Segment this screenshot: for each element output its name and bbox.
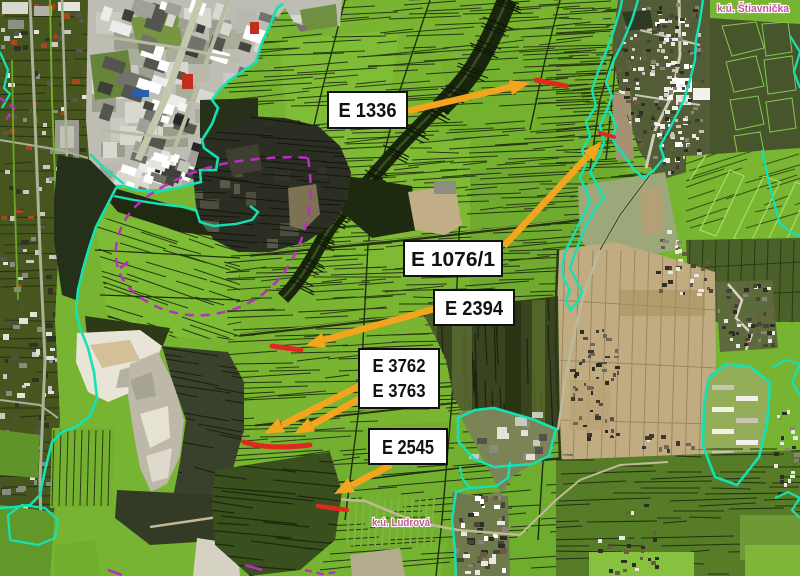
- svg-text:E 3763: E 3763: [373, 381, 426, 401]
- svg-text:E 1336: E 1336: [339, 100, 397, 122]
- svg-text:E 1076/1: E 1076/1: [411, 249, 495, 271]
- svg-text:E 3762: E 3762: [373, 356, 426, 376]
- svg-text:k.ú. Štiavnička: k.ú. Štiavnička: [717, 2, 790, 15]
- svg-text:k.ú. Ludrová: k.ú. Ludrová: [372, 517, 431, 529]
- svg-text:E 2394: E 2394: [445, 298, 504, 320]
- svg-text:E 2545: E 2545: [382, 437, 434, 459]
